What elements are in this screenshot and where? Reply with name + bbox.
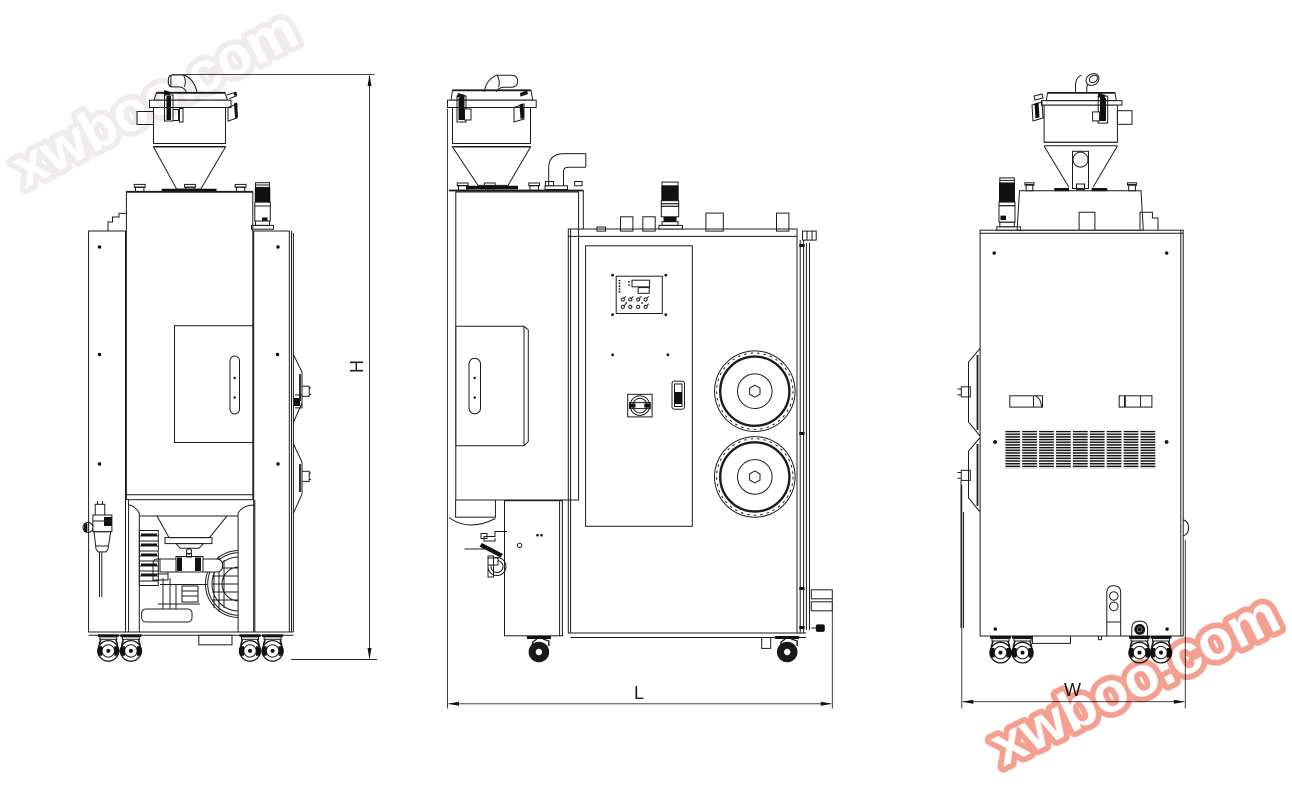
svg-text:xwboo.com: xwboo.com [980,581,1289,778]
svg-text:L: L [634,683,644,703]
svg-text:xwboo.com: xwboo.com [1,0,308,200]
svg-text:H: H [347,360,367,373]
